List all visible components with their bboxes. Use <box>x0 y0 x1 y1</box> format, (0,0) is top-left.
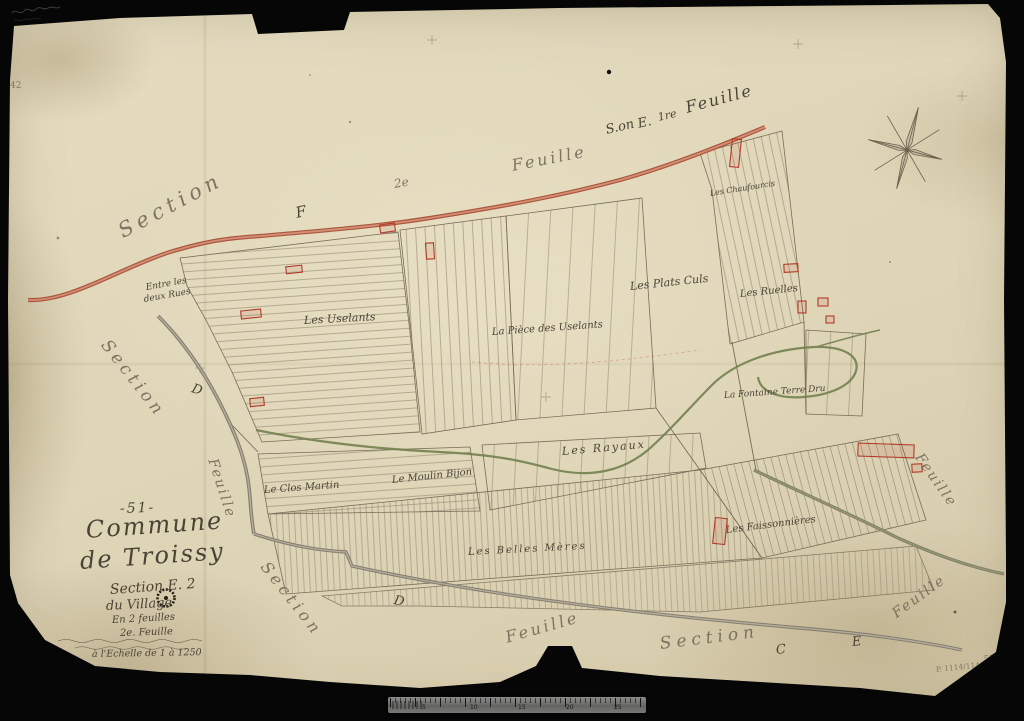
ruler-etching <box>392 701 422 709</box>
ruler-number: 15 <box>518 704 526 711</box>
ruler-cm-ticks <box>390 698 644 707</box>
ruler-number: 5 <box>422 704 426 711</box>
ruler-number: 10 <box>470 704 478 711</box>
scan-black-edges <box>0 0 1024 721</box>
ruler: 510152025 <box>388 697 646 713</box>
ruler-number: 25 <box>614 704 622 711</box>
ruler-number: 20 <box>566 704 574 711</box>
scanned-cadastral-map: SectionF2eFeuilleS.onE.1reFeuilleSection… <box>0 0 1024 721</box>
